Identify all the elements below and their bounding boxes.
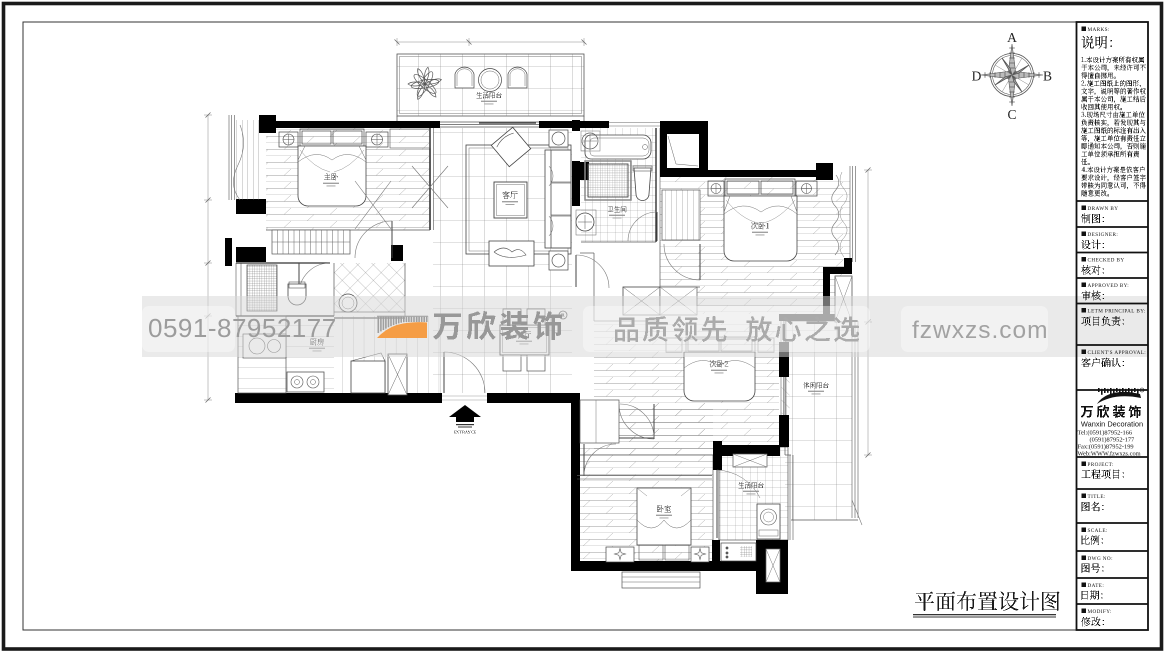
svg-text:DWG NO:: DWG NO:	[1088, 556, 1114, 562]
svg-text:PROJECT:: PROJECT:	[1088, 462, 1114, 468]
svg-text:Tel:(0591)87952-166: Tel:(0591)87952-166	[1078, 430, 1133, 437]
svg-text:C: C	[1007, 107, 1016, 122]
svg-text:LETM PRINCIPAL BY:: LETM PRINCIPAL BY:	[1088, 308, 1146, 314]
svg-text:TITLE:: TITLE:	[1088, 494, 1106, 500]
svg-text:DATE:: DATE:	[1088, 583, 1105, 589]
svg-text:(0591)87952-177: (0591)87952-177	[1090, 437, 1136, 444]
svg-text:SCALE:: SCALE:	[1088, 528, 1108, 534]
svg-text:B: B	[1043, 69, 1052, 84]
svg-text:CHECKED BY: CHECKED BY	[1088, 257, 1125, 263]
svg-text:DESIGNER:: DESIGNER:	[1088, 232, 1119, 238]
svg-text:DRAWN BY: DRAWN BY	[1088, 206, 1119, 212]
svg-text:A: A	[1007, 30, 1017, 45]
svg-text:MODIFY:: MODIFY:	[1088, 609, 1112, 615]
svg-text:APPROVED BY:: APPROVED BY:	[1088, 283, 1130, 289]
svg-text:fzwxzs.com: fzwxzs.com	[912, 317, 1049, 344]
svg-text:0591-87952177: 0591-87952177	[148, 313, 337, 343]
svg-text:D: D	[972, 69, 982, 84]
svg-text:Wanxin Decoration: Wanxin Decoration	[1081, 420, 1143, 429]
svg-text:MARKS:: MARKS:	[1088, 27, 1110, 33]
svg-text:Fax:(0591)87952-199: Fax:(0591)87952-199	[1078, 444, 1134, 451]
svg-text:Web:WWW.fzwxzs.com: Web:WWW.fzwxzs.com	[1078, 451, 1141, 458]
svg-text:CLIENT'S APPROVAL:: CLIENT'S APPROVAL:	[1088, 350, 1147, 356]
